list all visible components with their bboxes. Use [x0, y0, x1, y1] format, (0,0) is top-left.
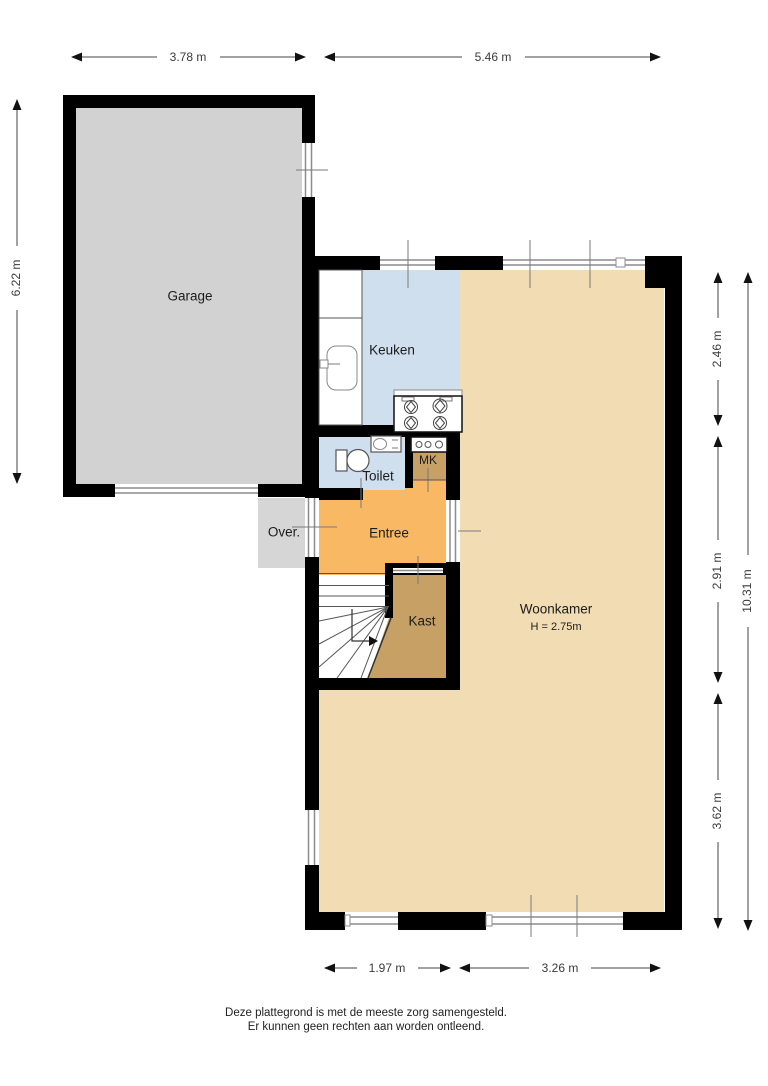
dimension-right-bottom: 3.62 m — [709, 694, 727, 928]
dimension-bottom-right: 3.26 m — [460, 959, 660, 976]
footer-line-2: Er kunnen geen rechten aan worden ontlee… — [248, 1021, 485, 1033]
svg-text:5.46 m: 5.46 m — [475, 50, 512, 64]
kast-label: Kast — [408, 614, 435, 629]
living-bottom-window-left — [345, 912, 398, 930]
dimension-garage-depth: 6.22 m — [8, 100, 26, 483]
toilet-label: Toilet — [362, 469, 394, 484]
dimension-right-middle: 2.91 m — [709, 437, 727, 682]
garage-wall-bottom-left — [63, 484, 115, 497]
svg-text:6.22 m: 6.22 m — [9, 260, 23, 297]
house-wall-top-b — [435, 256, 503, 270]
dimension-right-total: 10.31 m — [739, 273, 757, 930]
kitchen-sink — [327, 346, 357, 390]
garage-door — [115, 484, 258, 497]
wall-kast-right — [446, 562, 460, 690]
footer-line-1: Deze plattegrond is met de meeste zorg s… — [225, 1007, 507, 1019]
wall-stairs-bottom — [305, 678, 458, 690]
meter-panel — [411, 437, 447, 452]
svg-text:10.31 m: 10.31 m — [740, 569, 754, 612]
garage-wall-left — [63, 95, 76, 497]
svg-text:3.78 m: 3.78 m — [170, 50, 207, 64]
floor-plan-drawing: Garage Keuken Toilet MK Entree Over. Kas… — [0, 0, 768, 1086]
garage-wall-top — [63, 95, 315, 108]
house-wall-bottom-b — [398, 912, 486, 930]
entree-label: Entree — [369, 526, 409, 541]
stove-fixture — [394, 390, 462, 432]
house-wall-left-mid — [305, 557, 319, 690]
footer-disclaimer: Deze plattegrond is met de meeste zorg s… — [225, 1007, 507, 1033]
house-wall-bottom-a — [305, 912, 345, 930]
floor-plan-page: Garage Keuken Toilet MK Entree Over. Kas… — [0, 0, 768, 1086]
living-side-window — [305, 810, 319, 865]
garage-wall-right-top — [302, 95, 315, 143]
dimension-house-width: 5.46 m — [325, 48, 660, 65]
garage-label: Garage — [167, 289, 212, 304]
svg-text:2.46 m: 2.46 m — [710, 331, 724, 368]
house-wall-bottom-c — [623, 912, 682, 930]
svg-text:3.62 m: 3.62 m — [710, 793, 724, 830]
dimension-garage-width: 3.78 m — [72, 48, 305, 65]
mk-label: MK — [419, 453, 437, 467]
dimension-bottom-left: 1.97 m — [325, 959, 450, 976]
toilet-sink-fixture — [371, 436, 401, 452]
keuken-label: Keuken — [369, 343, 415, 358]
floors — [63, 95, 664, 912]
kitchen-faucet — [320, 360, 328, 368]
dimension-right-top: 2.46 m — [709, 273, 727, 425]
wall-toilet-hall — [319, 488, 363, 500]
house-wall-right — [665, 256, 682, 930]
woonkamer-label: Woonkamer — [520, 602, 593, 617]
over-label: Over. — [268, 525, 300, 540]
house-wall-top-a — [305, 256, 380, 270]
svg-text:1.97 m: 1.97 m — [369, 961, 406, 975]
house-wall-left-upper — [305, 256, 319, 498]
svg-text:3.26 m: 3.26 m — [542, 961, 579, 975]
svg-text:2.91 m: 2.91 m — [710, 553, 724, 590]
woonkamer-height-label: H = 2.75m — [530, 621, 581, 633]
house-wall-left-lower — [305, 690, 319, 810]
kitchen-counter — [319, 270, 362, 425]
wall-hall-right-top — [446, 472, 460, 500]
toilet-tank — [336, 450, 347, 471]
